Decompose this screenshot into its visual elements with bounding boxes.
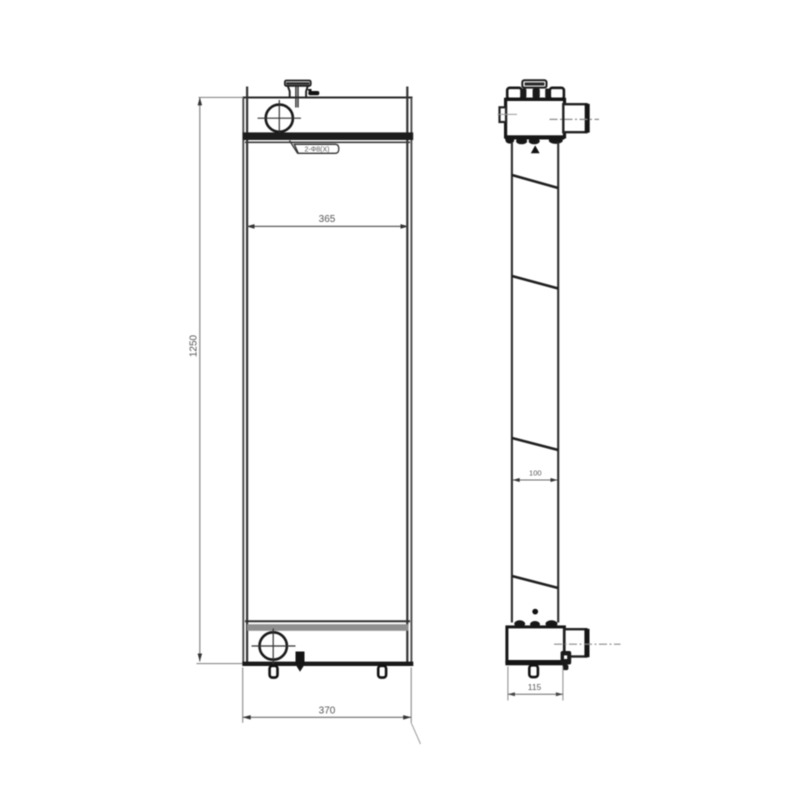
svg-text:365: 365 bbox=[319, 214, 336, 225]
svg-text:2-Φ8(X): 2-Φ8(X) bbox=[304, 146, 329, 153]
svg-text:100: 100 bbox=[529, 469, 542, 478]
svg-text:115: 115 bbox=[528, 682, 542, 692]
svg-text:1250: 1250 bbox=[189, 334, 200, 357]
svg-text:370: 370 bbox=[319, 706, 336, 717]
